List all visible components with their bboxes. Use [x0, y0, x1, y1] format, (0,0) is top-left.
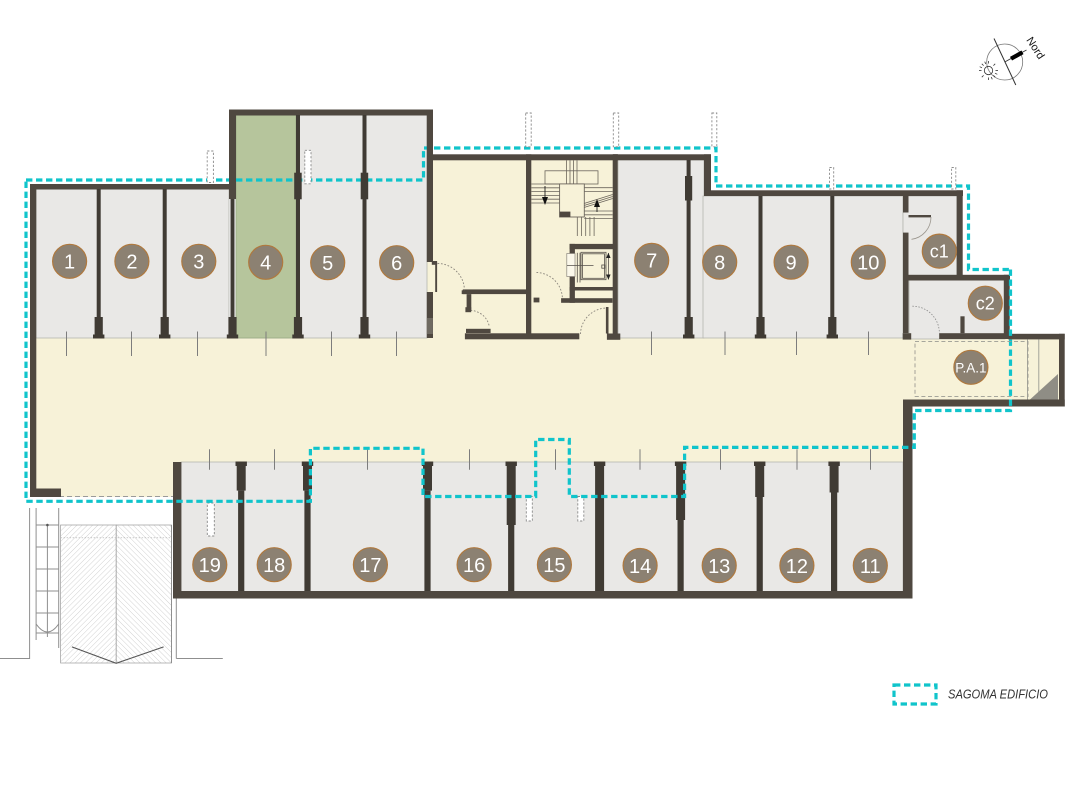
svg-text:9: 9 — [786, 253, 797, 275]
svg-text:15: 15 — [543, 555, 565, 577]
svg-text:17: 17 — [359, 555, 381, 577]
svg-text:8: 8 — [714, 253, 725, 275]
svg-text:SAGOMA EDIFICIO: SAGOMA EDIFICIO — [948, 688, 1048, 702]
svg-text:7: 7 — [646, 251, 657, 273]
svg-text:c2: c2 — [976, 294, 995, 314]
svg-text:12: 12 — [786, 556, 808, 578]
svg-text:11: 11 — [860, 556, 881, 578]
svg-text:14: 14 — [629, 556, 651, 578]
svg-text:18: 18 — [263, 555, 285, 577]
svg-text:16: 16 — [463, 555, 485, 577]
svg-text:4: 4 — [260, 253, 271, 275]
svg-text:5: 5 — [322, 253, 333, 275]
svg-text:10: 10 — [857, 253, 879, 275]
svg-text:19: 19 — [199, 555, 221, 577]
svg-text:1: 1 — [64, 252, 75, 274]
svg-text:c1: c1 — [930, 241, 949, 261]
svg-text:P.A.1: P.A.1 — [955, 360, 986, 375]
svg-text:13: 13 — [708, 556, 730, 578]
svg-text:2: 2 — [126, 252, 137, 274]
svg-text:6: 6 — [391, 253, 402, 275]
svg-text:3: 3 — [193, 252, 204, 274]
